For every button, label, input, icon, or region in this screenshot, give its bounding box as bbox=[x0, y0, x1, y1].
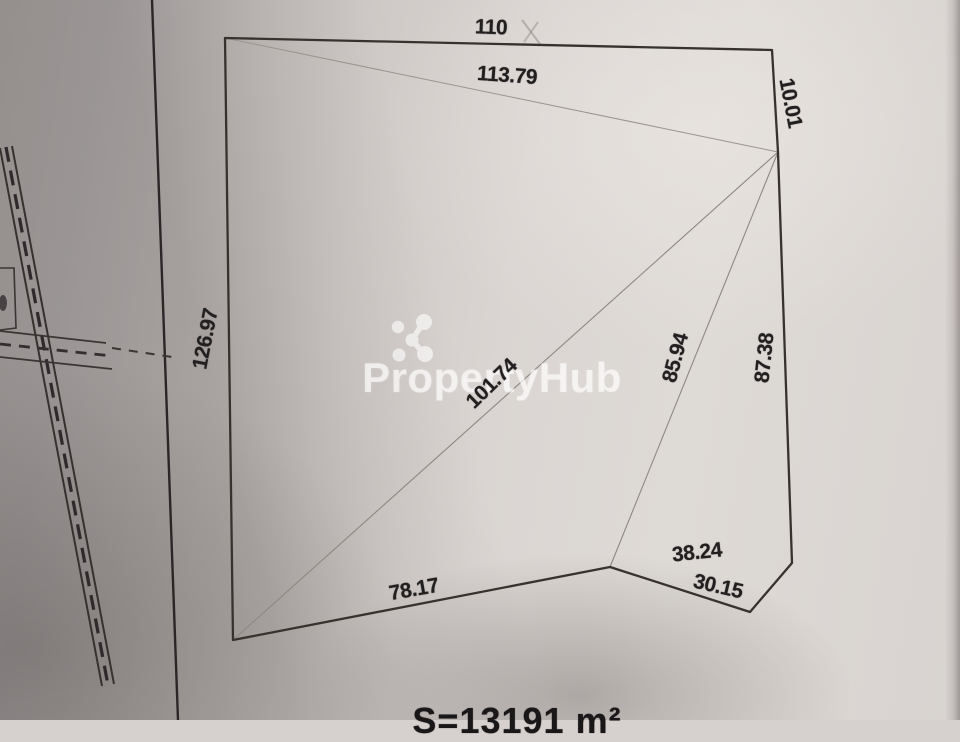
road-edge-right-line bbox=[12, 146, 114, 684]
dimension-top-diagonal: 113.79 bbox=[476, 62, 538, 90]
cross-road-continuation-dashes bbox=[112, 348, 172, 357]
plot-area-label: S=13191 m² bbox=[412, 700, 621, 742]
cross-road-bottom-line bbox=[0, 357, 112, 369]
sheet-frame-line bbox=[152, 0, 178, 720]
dimension-top-side: 110 bbox=[474, 15, 507, 40]
cross-road-top-line bbox=[0, 331, 106, 343]
survey-sketch-scene: PropertyHub 110 113.79 10.01 126.97 101.… bbox=[0, 0, 960, 720]
edge-parcel-mark bbox=[0, 295, 7, 311]
diagonal-top-faint-line bbox=[225, 38, 778, 152]
road-edge-left-line bbox=[0, 148, 102, 686]
road-centerline-dashed bbox=[6, 147, 108, 685]
cross-road-centerline-dashed bbox=[0, 344, 112, 356]
